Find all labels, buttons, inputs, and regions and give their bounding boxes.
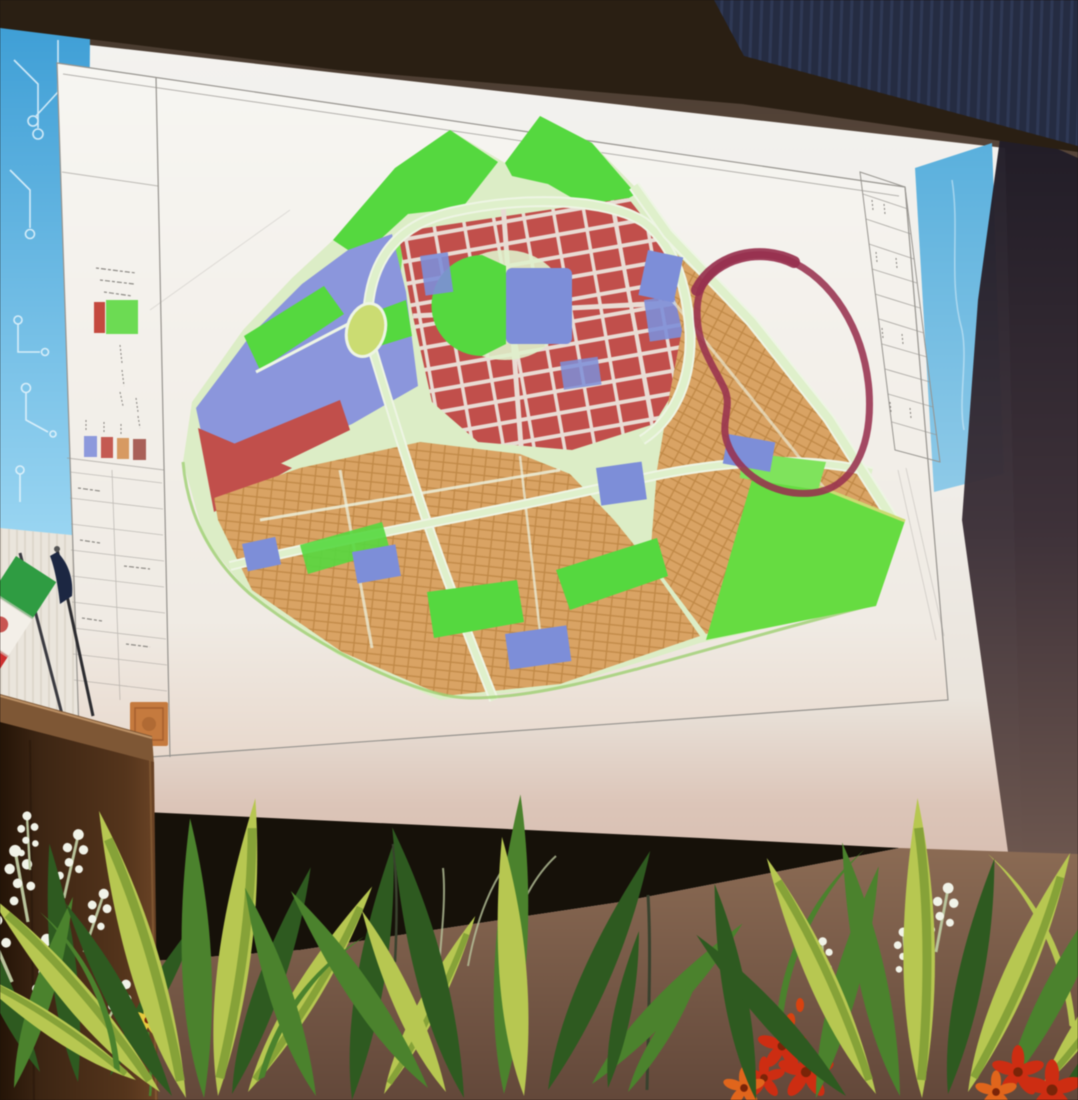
legend-swatch-red2 <box>101 437 113 458</box>
legend-swatch-tan <box>117 438 129 459</box>
legend-swatch-blue <box>84 436 97 457</box>
legend-swatch-green <box>106 300 138 334</box>
photo-conference-stage <box>0 0 1078 1100</box>
stadium-field-blue <box>506 268 572 344</box>
legend-swatch-red <box>94 302 105 333</box>
legend-swatch-maroon <box>133 439 146 460</box>
